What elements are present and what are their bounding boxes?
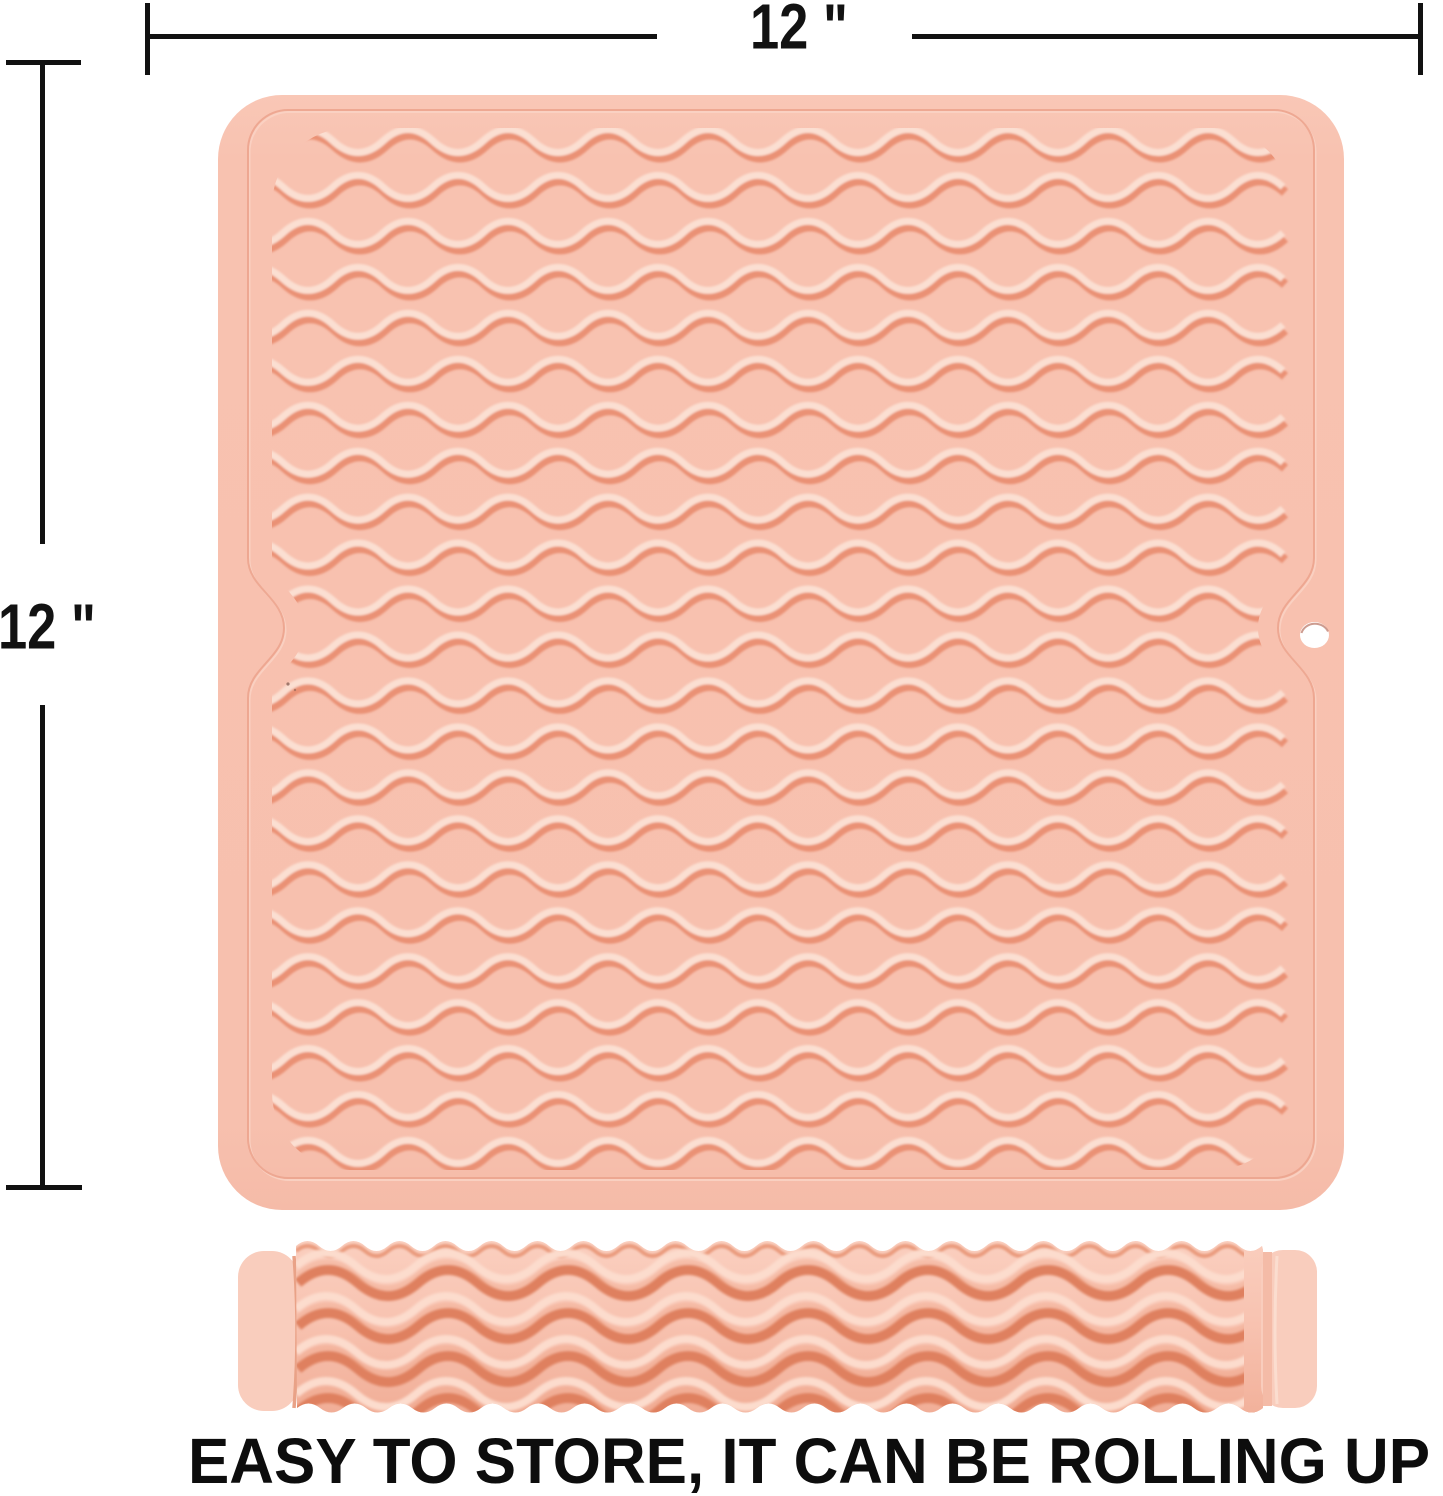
- svg-text:EASY TO STORE, IT CAN BE ROLLI: EASY TO STORE, IT CAN BE ROLLING UP: [188, 1425, 1430, 1496]
- svg-text:12 ": 12 ": [750, 0, 848, 63]
- svg-text:12 ": 12 ": [0, 592, 96, 663]
